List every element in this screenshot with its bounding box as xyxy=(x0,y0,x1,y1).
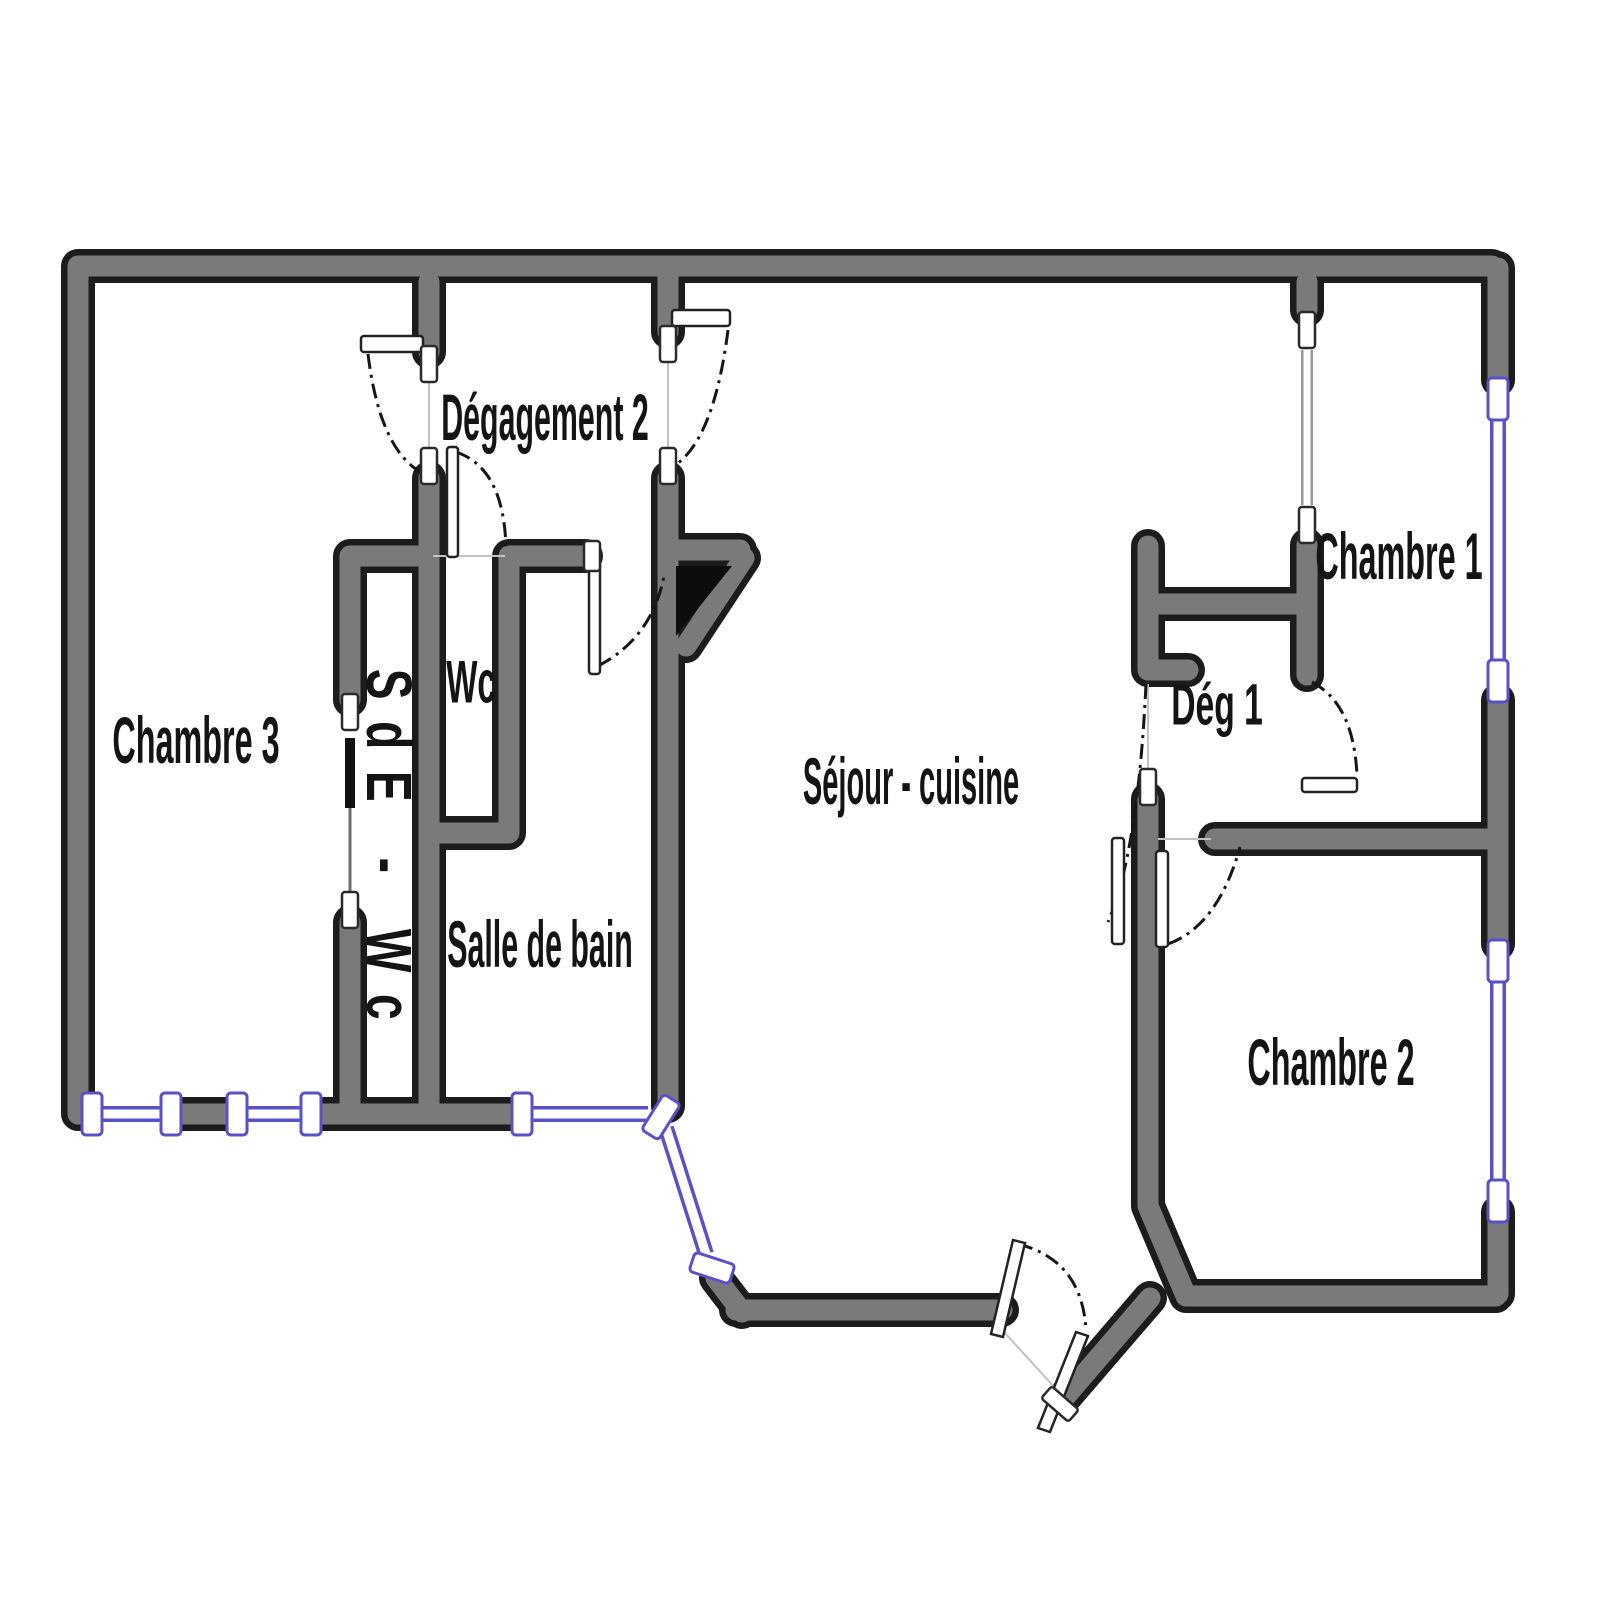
door-leaf-chambre2 xyxy=(1156,851,1168,947)
door-arc-sejour-top xyxy=(674,330,728,466)
room-label-chambre-1: Chambre 1 xyxy=(1315,518,1482,594)
door-leaf-chambre3 xyxy=(361,336,423,352)
door-leaf-wc xyxy=(447,447,458,557)
door-arc-chambre2 xyxy=(1168,847,1240,944)
floor-plan-drawing xyxy=(0,0,1600,1600)
room-label-sde-wc: SdE - Wc xyxy=(352,669,426,1041)
walls-layer xyxy=(78,266,1498,1398)
door-arc-entry xyxy=(1018,1244,1086,1330)
room-label-chambre-2: Chambre 2 xyxy=(1247,1024,1414,1100)
door-arc-chambre3 xyxy=(368,354,424,474)
room-label-wc: Wc xyxy=(446,648,496,717)
door-leaf-sejour-top xyxy=(672,310,730,326)
door-leaf-chambre1 xyxy=(1302,778,1357,792)
room-label-chambre-3: Chambre 3 xyxy=(112,702,279,778)
door-arc-chambre1 xyxy=(1312,682,1357,776)
opening-hairlines xyxy=(429,346,1211,1400)
door-leaf-deg1 xyxy=(1112,838,1124,944)
door-leaves-layer xyxy=(361,310,1357,1432)
room-label-sejour-cuisine: Séjour - cuisine xyxy=(803,743,1019,819)
room-label-salle-de-bain: Salle de bain xyxy=(447,906,633,982)
door-leaf-salle-de-bain xyxy=(589,562,600,674)
door-arc-wc xyxy=(456,452,506,548)
room-label-deg-1: Dég 1 xyxy=(1171,672,1263,739)
room-label-degagement-2: Dégagement 2 xyxy=(441,379,649,455)
floor-plan-page: Chambre 3 SdE - Wc Wc Dégagement 2 Salle… xyxy=(0,0,1600,1600)
